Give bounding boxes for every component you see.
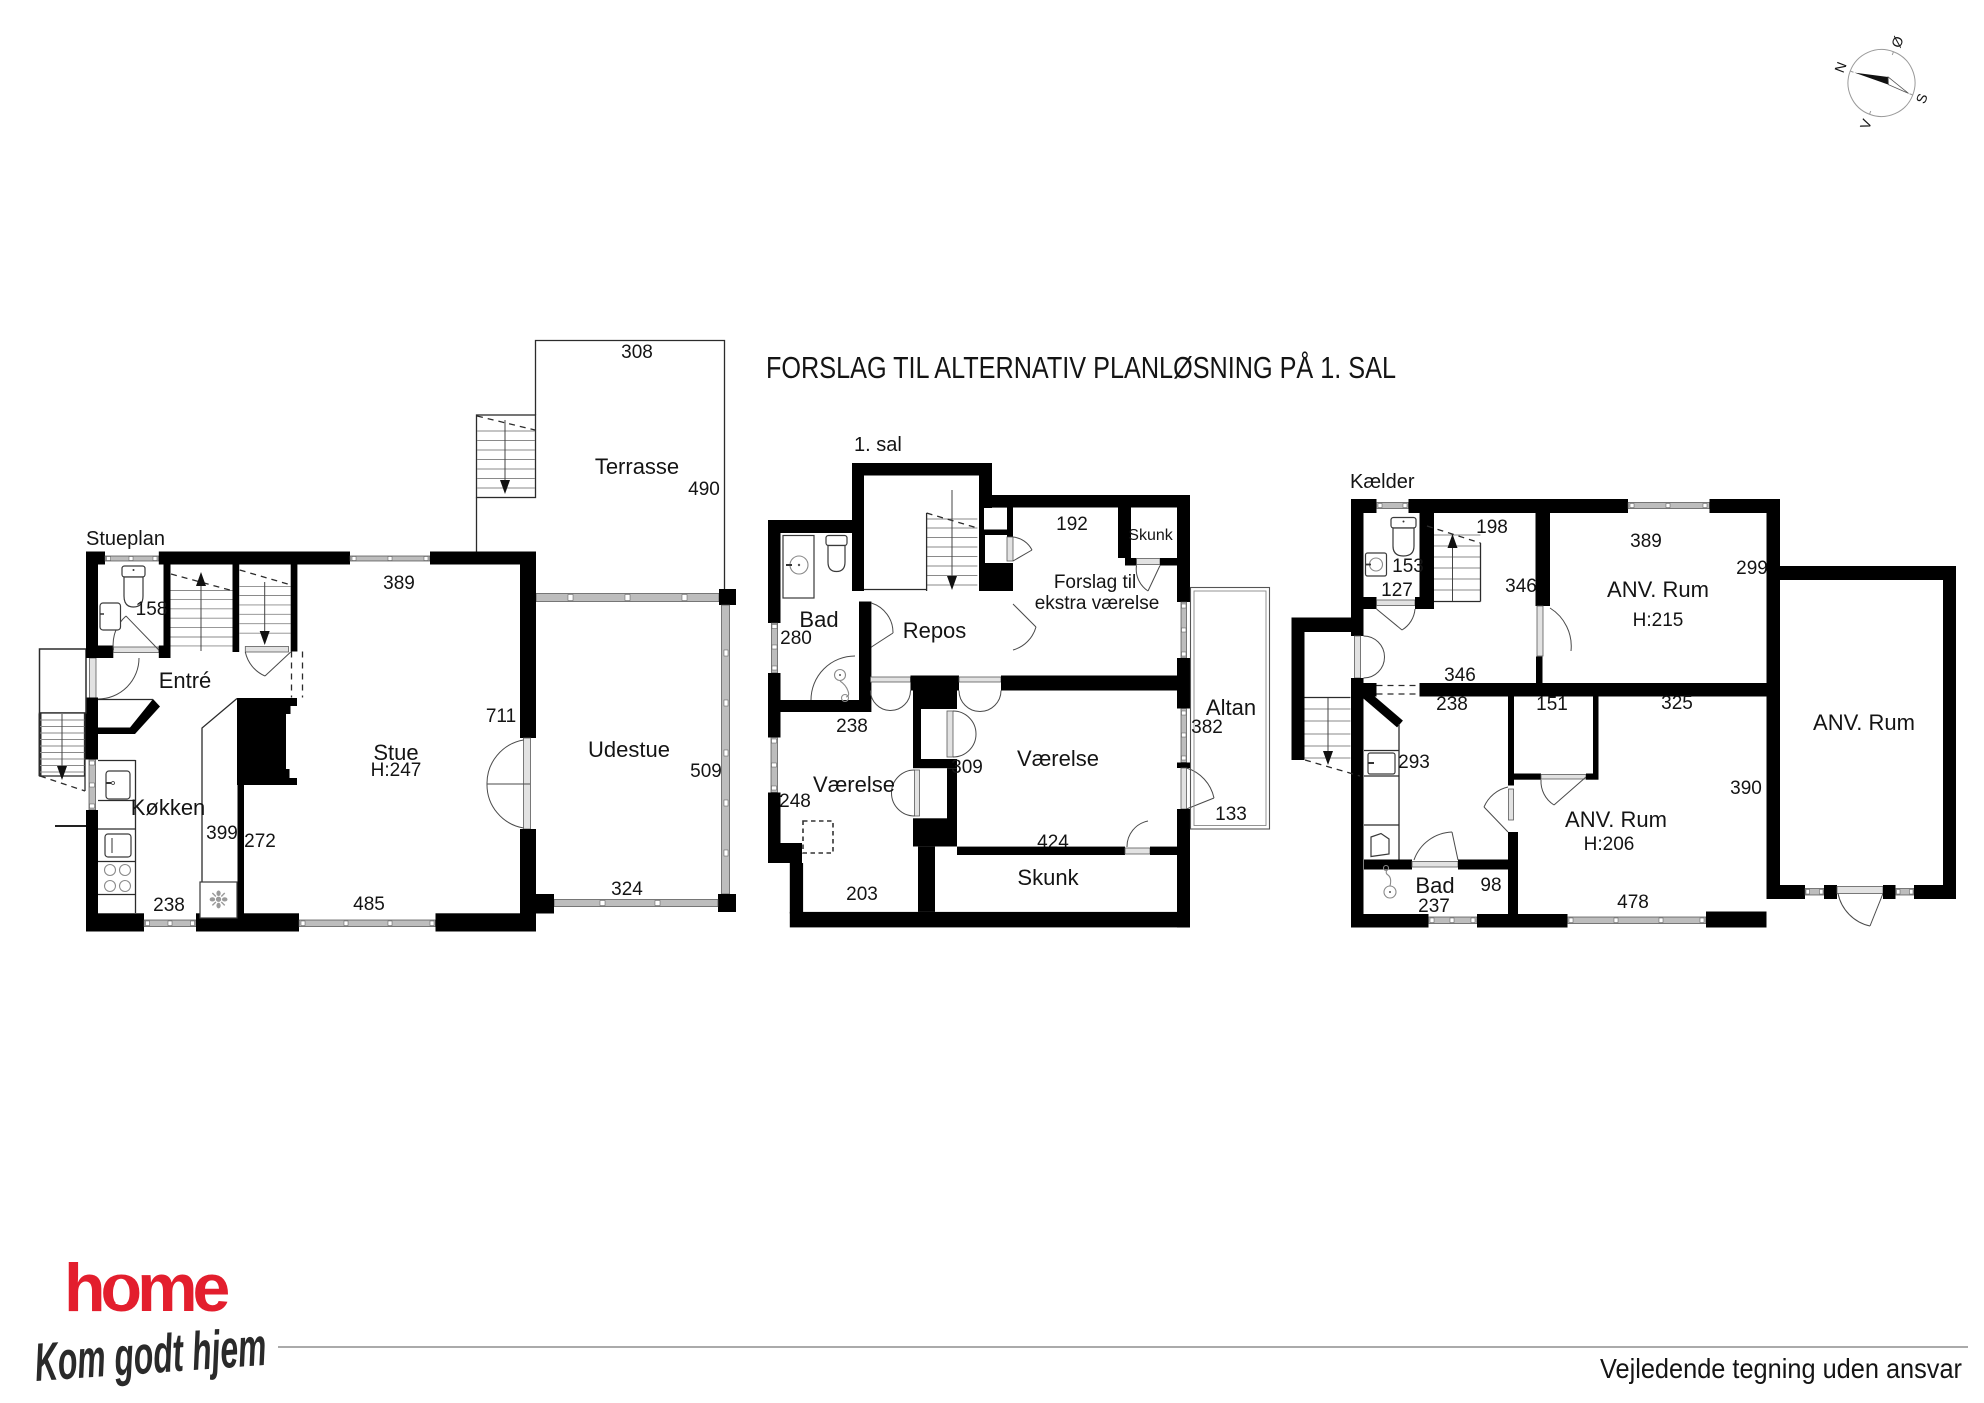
svg-text:293: 293 [1398,752,1430,773]
svg-text:346: 346 [1444,665,1476,686]
svg-text:98: 98 [1480,875,1501,896]
svg-text:FORSLAG TIL ALTERNATIV PLANLØS: FORSLAG TIL ALTERNATIV PLANLØSNING PÅ 1.… [766,350,1396,385]
svg-text:H:247: H:247 [371,760,422,781]
svg-text:Repos: Repos [903,618,967,643]
svg-text:711: 711 [486,706,516,727]
svg-text:299: 299 [1736,558,1768,579]
svg-text:280: 280 [780,628,812,649]
svg-text:Værelse: Værelse [813,772,895,797]
svg-text:Kælder: Kælder [1350,471,1415,493]
svg-text:Værelse: Værelse [1017,746,1099,771]
svg-text:509: 509 [690,761,722,782]
svg-text:389: 389 [1630,531,1662,552]
svg-text:ANV. Rum: ANV. Rum [1607,577,1709,602]
svg-text:Køkken: Køkken [131,795,206,820]
svg-text:198: 198 [1476,517,1508,538]
svg-text:390: 390 [1730,778,1762,799]
svg-text:1. sal: 1. sal [854,434,902,456]
svg-text:248: 248 [779,791,811,812]
svg-text:399: 399 [206,823,238,844]
svg-text:238: 238 [1436,694,1468,715]
svg-text:308: 308 [621,342,653,363]
svg-text:490: 490 [688,479,720,500]
svg-text:ANV. Rum: ANV. Rum [1813,710,1915,735]
svg-text:Udestue: Udestue [588,737,670,762]
svg-text:Skunk: Skunk [1017,865,1079,890]
svg-text:Terrasse: Terrasse [595,454,679,479]
svg-text:❉: ❉ [208,887,228,914]
svg-text:346: 346 [1505,576,1537,597]
svg-text:ekstra værelse: ekstra værelse [1035,593,1160,614]
svg-text:133: 133 [1215,804,1247,825]
svg-text:Stueplan: Stueplan [86,528,165,550]
svg-text:151: 151 [1536,694,1568,715]
svg-text:309: 309 [951,757,983,778]
svg-text:Vejledende tegning uden ansvar: Vejledende tegning uden ansvar [1600,1353,1962,1384]
svg-text:192: 192 [1056,514,1088,535]
svg-text:H:206: H:206 [1584,834,1635,855]
svg-text:389: 389 [383,573,415,594]
svg-text:238: 238 [836,716,868,737]
svg-text:478: 478 [1617,892,1649,913]
svg-text:Entré: Entré [159,668,212,693]
svg-text:153: 153 [1392,556,1424,577]
svg-text:238: 238 [153,895,185,916]
svg-text:Skunk: Skunk [1128,527,1173,544]
svg-text:272: 272 [244,831,276,852]
svg-text:home: home [64,1250,229,1326]
svg-text:H:215: H:215 [1633,610,1684,631]
svg-text:127: 127 [1381,580,1413,601]
svg-text:Bad: Bad [1415,873,1454,898]
svg-text:382: 382 [1191,717,1223,738]
svg-text:ANV. Rum: ANV. Rum [1565,807,1667,832]
svg-text:Forslag til: Forslag til [1054,572,1136,593]
svg-text:158: 158 [136,599,168,620]
svg-text:203: 203 [846,884,878,905]
svg-text:325: 325 [1661,693,1693,714]
svg-text:324: 324 [611,879,643,900]
svg-text:485: 485 [353,894,385,915]
svg-text:237: 237 [1418,896,1450,917]
